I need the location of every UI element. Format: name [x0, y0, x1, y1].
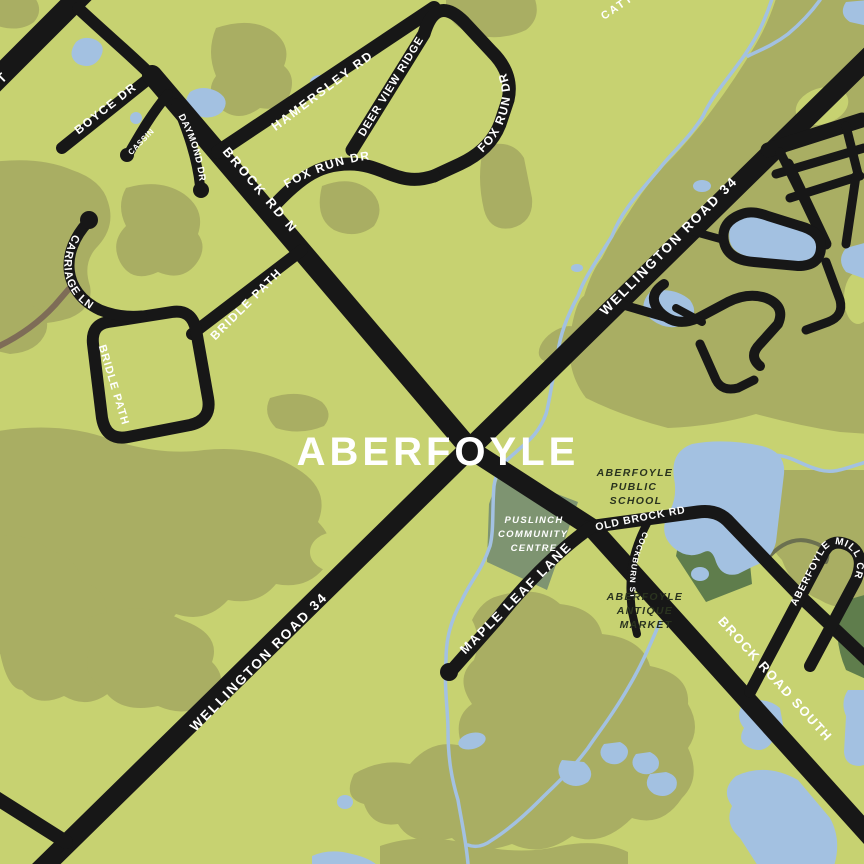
- poi-line: ABERFOYLE: [606, 591, 683, 603]
- culdesac: [193, 182, 209, 198]
- pond: [571, 264, 583, 272]
- pond: [691, 567, 709, 581]
- poi-line: PUSLINCH: [505, 515, 564, 526]
- poi-line: COMMUNITY: [498, 529, 569, 540]
- town-title: ABERFOYLE: [297, 430, 580, 474]
- poi-line: ANTIQUE: [616, 605, 673, 617]
- aberfoyle-map: BOYCE DR BROCK RD N CASSIN DAYMOND DR HA…: [0, 0, 864, 864]
- poi-line: ABERFOYLE: [596, 467, 673, 479]
- pond: [693, 180, 711, 192]
- culdesac: [440, 663, 458, 681]
- poi-line: MARKET: [620, 619, 673, 631]
- poi-line: PUBLIC: [610, 481, 657, 493]
- pond: [130, 112, 142, 124]
- culdesac: [80, 211, 98, 229]
- poi-line: CENTRE: [511, 543, 558, 554]
- pond: [843, 690, 864, 766]
- pond: [337, 795, 353, 809]
- poi-line: SCHOOL: [610, 495, 663, 507]
